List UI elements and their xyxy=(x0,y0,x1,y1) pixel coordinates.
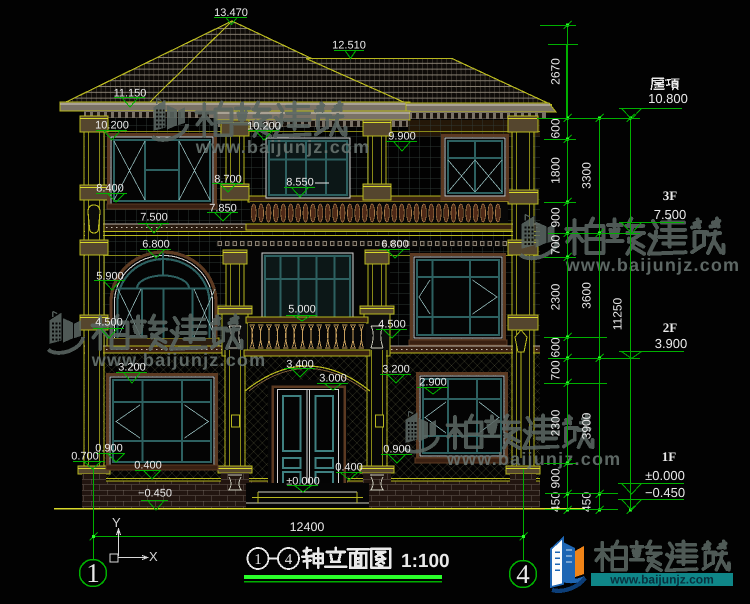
svg-text:3F: 3F xyxy=(663,188,678,203)
svg-text:2300: 2300 xyxy=(549,283,563,310)
svg-text:3600: 3600 xyxy=(580,282,594,309)
svg-text:www.baijunjz.com: www.baijunjz.com xyxy=(195,137,371,157)
svg-text:−0.450: −0.450 xyxy=(138,488,172,500)
svg-text:2300: 2300 xyxy=(549,409,563,436)
svg-text:1:100: 1:100 xyxy=(401,551,450,572)
svg-text:−0.450: −0.450 xyxy=(645,485,685,500)
svg-text:8.400: 8.400 xyxy=(96,183,124,195)
svg-text:4: 4 xyxy=(285,552,293,568)
svg-text:4.500: 4.500 xyxy=(95,317,123,329)
svg-text:0.700: 0.700 xyxy=(71,451,99,463)
svg-text:5.000: 5.000 xyxy=(288,304,316,316)
svg-text:3.200: 3.200 xyxy=(118,362,146,374)
svg-text:3.900: 3.900 xyxy=(655,336,688,351)
svg-text:600: 600 xyxy=(549,118,563,138)
svg-text:450: 450 xyxy=(549,492,563,512)
svg-text:10.200: 10.200 xyxy=(95,120,129,132)
svg-text:2.900: 2.900 xyxy=(419,377,447,389)
svg-text:0.900: 0.900 xyxy=(95,443,123,455)
svg-text:1: 1 xyxy=(254,552,262,568)
svg-text:1: 1 xyxy=(86,558,100,588)
svg-text:700: 700 xyxy=(549,360,563,380)
svg-text:0.900: 0.900 xyxy=(383,444,411,456)
svg-text:12400: 12400 xyxy=(290,520,325,534)
svg-text:Y: Y xyxy=(112,515,121,530)
svg-text:4.500: 4.500 xyxy=(378,319,406,331)
svg-text:1F: 1F xyxy=(662,449,677,464)
svg-text:X: X xyxy=(149,549,158,564)
svg-text:7.500: 7.500 xyxy=(654,207,687,222)
svg-text:2F: 2F xyxy=(663,320,678,335)
svg-text:9.900: 9.900 xyxy=(388,131,416,143)
svg-text:700: 700 xyxy=(549,235,563,255)
svg-text:4: 4 xyxy=(516,559,530,589)
svg-text:0.400: 0.400 xyxy=(335,462,363,474)
svg-text:www.baijunjz.com: www.baijunjz.com xyxy=(609,573,714,587)
svg-text:3300: 3300 xyxy=(580,162,594,189)
svg-text:www.baijunjz.com: www.baijunjz.com xyxy=(91,350,267,370)
svg-text:450: 450 xyxy=(580,492,594,512)
svg-text:www.baijunjz.com: www.baijunjz.com xyxy=(446,449,622,469)
svg-text:2670: 2670 xyxy=(549,58,563,85)
svg-text:10.800: 10.800 xyxy=(648,91,688,106)
svg-text:0.400: 0.400 xyxy=(134,460,162,472)
svg-text:11250: 11250 xyxy=(611,297,625,330)
svg-text:6.800: 6.800 xyxy=(142,239,170,251)
svg-text:8.550: 8.550 xyxy=(286,177,314,189)
svg-text:3900: 3900 xyxy=(580,412,594,439)
svg-text:3.200: 3.200 xyxy=(382,364,410,376)
svg-text:900: 900 xyxy=(549,207,563,227)
svg-text:7.500: 7.500 xyxy=(140,212,168,224)
svg-text:3.000: 3.000 xyxy=(319,373,347,385)
svg-text:www.baijunjz.com: www.baijunjz.com xyxy=(565,255,741,275)
svg-text:6.800: 6.800 xyxy=(381,239,409,251)
svg-text:600: 600 xyxy=(549,337,563,357)
svg-text:900: 900 xyxy=(549,468,563,488)
svg-text:1800: 1800 xyxy=(549,157,563,184)
svg-text:±0.000: ±0.000 xyxy=(645,468,685,483)
